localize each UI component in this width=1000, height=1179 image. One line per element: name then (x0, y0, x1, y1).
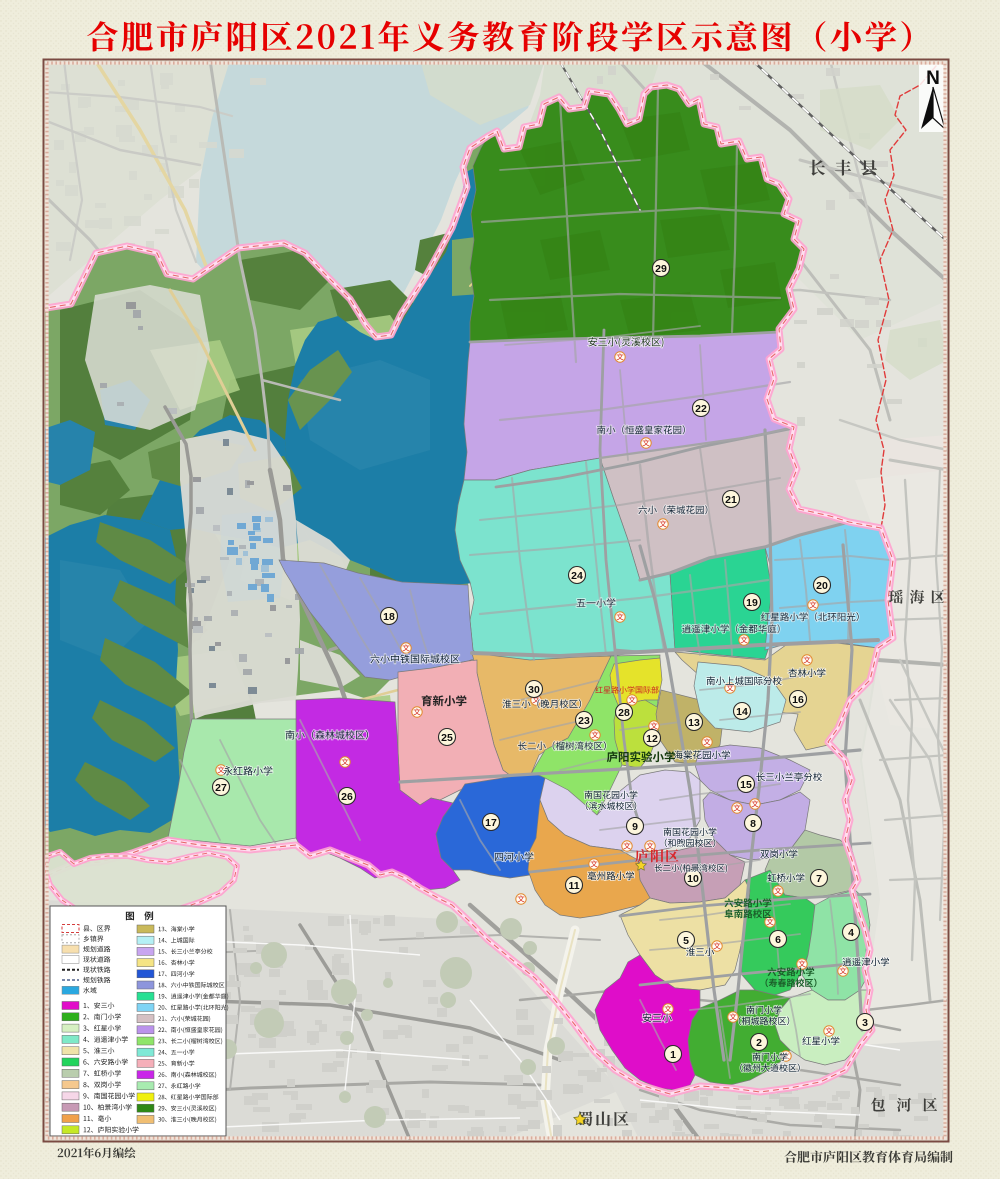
svg-text:6: 6 (775, 934, 781, 946)
svg-text:29: 29 (655, 263, 667, 275)
svg-text:7: 7 (816, 873, 822, 885)
svg-text:1: 1 (670, 1049, 676, 1061)
svg-text:10: 10 (687, 873, 699, 885)
svg-text:26: 26 (341, 791, 353, 803)
svg-text:16: 16 (792, 694, 804, 706)
svg-text:22: 22 (695, 403, 707, 415)
svg-text:20: 20 (816, 580, 828, 592)
svg-text:17: 17 (485, 817, 497, 829)
svg-text:2: 2 (756, 1037, 762, 1049)
svg-text:24: 24 (571, 570, 583, 582)
svg-text:27: 27 (215, 782, 227, 794)
svg-text:5: 5 (683, 935, 689, 947)
svg-text:18: 18 (383, 611, 395, 623)
svg-text:14: 14 (736, 706, 748, 718)
svg-text:23: 23 (578, 715, 590, 727)
svg-text:28: 28 (618, 707, 630, 719)
svg-text:9: 9 (632, 821, 638, 833)
svg-text:12: 12 (646, 733, 658, 745)
svg-text:3: 3 (862, 1017, 868, 1029)
svg-text:4: 4 (848, 927, 854, 939)
svg-text:21: 21 (725, 494, 737, 506)
svg-text:13: 13 (688, 717, 700, 729)
svg-text:15: 15 (740, 779, 752, 791)
svg-text:N: N (926, 68, 940, 89)
svg-text:19: 19 (746, 597, 758, 609)
svg-text:8: 8 (750, 818, 756, 830)
svg-text:25: 25 (441, 732, 453, 744)
svg-text:30: 30 (528, 684, 540, 696)
svg-text:11: 11 (568, 880, 579, 892)
